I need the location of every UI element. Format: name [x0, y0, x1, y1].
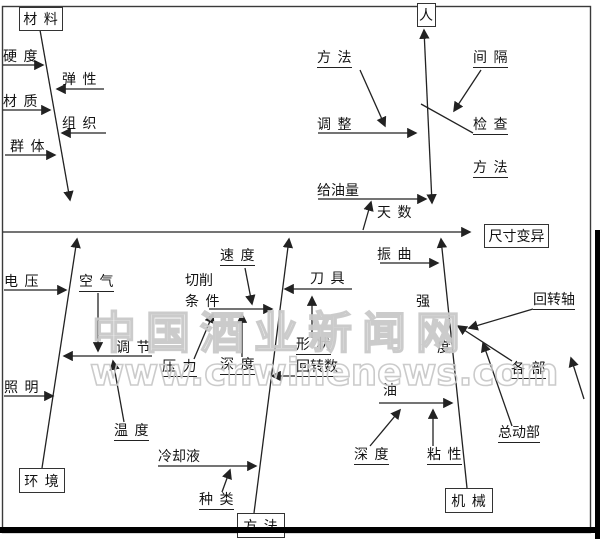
image-bottom-edge	[0, 527, 600, 533]
cause-type: 种 类	[199, 492, 234, 510]
cause-viscosity: 粘 性	[427, 447, 462, 465]
line-each-part	[458, 326, 512, 361]
line-rotary-shaft	[469, 309, 533, 328]
cause-adjust: 调 整	[317, 117, 352, 133]
cause-interval: 间 隔	[473, 50, 508, 68]
image-right-edge	[595, 230, 600, 539]
line-method1	[360, 70, 385, 126]
cause-inspect: 检 查	[473, 117, 508, 135]
cause-hardness: 硬 度	[3, 49, 38, 65]
cause-group: 群 体	[10, 139, 45, 155]
line-speed	[245, 268, 252, 304]
line-interval	[454, 70, 481, 111]
cause-depth1: 深 度	[220, 357, 255, 375]
fishbone-diagram: 材 料 人 尺寸变异 环 境 方 法 机 械 硬 度 弹 性 材 质 组 织 群…	[0, 0, 600, 539]
box-materials: 材 料	[19, 7, 63, 31]
cause-days: 天 数	[377, 205, 412, 221]
cause-method2: 方 法	[473, 160, 508, 178]
line-moving-parts	[483, 343, 512, 426]
line-type	[222, 470, 230, 492]
box-environment: 环 境	[19, 468, 65, 493]
line-pressure	[194, 314, 213, 359]
cause-method1: 方 法	[317, 50, 352, 68]
cause-pressure: 压 力	[162, 359, 197, 377]
cause-voltage: 电 压	[4, 274, 39, 290]
cause-elasticity: 弹 性	[62, 72, 97, 88]
line-depth2	[370, 410, 400, 446]
cause-regulate: 调 节	[116, 340, 151, 356]
cause-temperature: 温 度	[114, 423, 149, 441]
cause-lighting: 照 明	[4, 380, 39, 396]
cause-rotary-shaft: 回转轴	[533, 292, 575, 310]
cause-strength-top: 强	[416, 294, 431, 310]
cause-vibration: 振 曲	[377, 247, 412, 263]
cause-condition: 条 件	[185, 294, 220, 310]
cause-each-part: 各 部	[511, 361, 546, 379]
line-days	[363, 202, 371, 230]
box-effect: 尺寸变异	[484, 224, 549, 248]
line-temperature	[113, 361, 124, 422]
branch-person	[424, 30, 432, 203]
box-person: 人	[417, 3, 436, 27]
cause-air: 空 气	[79, 274, 114, 292]
cause-texture: 材 质	[3, 94, 38, 110]
cause-speed: 速 度	[220, 248, 255, 266]
cause-oil-supply: 给油量	[317, 183, 359, 199]
cause-rotation-count: 回转数	[296, 359, 338, 377]
cause-cutting: 切削	[185, 273, 213, 289]
cause-strength-bottom: 度	[437, 340, 452, 356]
branch-environment	[42, 239, 77, 468]
cause-tool: 刀 具	[310, 271, 345, 287]
line-stray-arrow	[571, 358, 584, 399]
cause-coolant: 冷却液	[158, 449, 200, 465]
cause-oil: 油	[383, 383, 398, 399]
cause-depth2: 深 度	[354, 447, 389, 465]
box-machine: 机 械	[445, 488, 493, 513]
cause-shape: 形 状	[296, 337, 331, 355]
cause-structure: 组 织	[62, 116, 97, 132]
branch-materials	[40, 30, 70, 200]
cause-moving-parts: 总动部	[498, 425, 540, 443]
box-method: 方 法	[237, 513, 285, 538]
